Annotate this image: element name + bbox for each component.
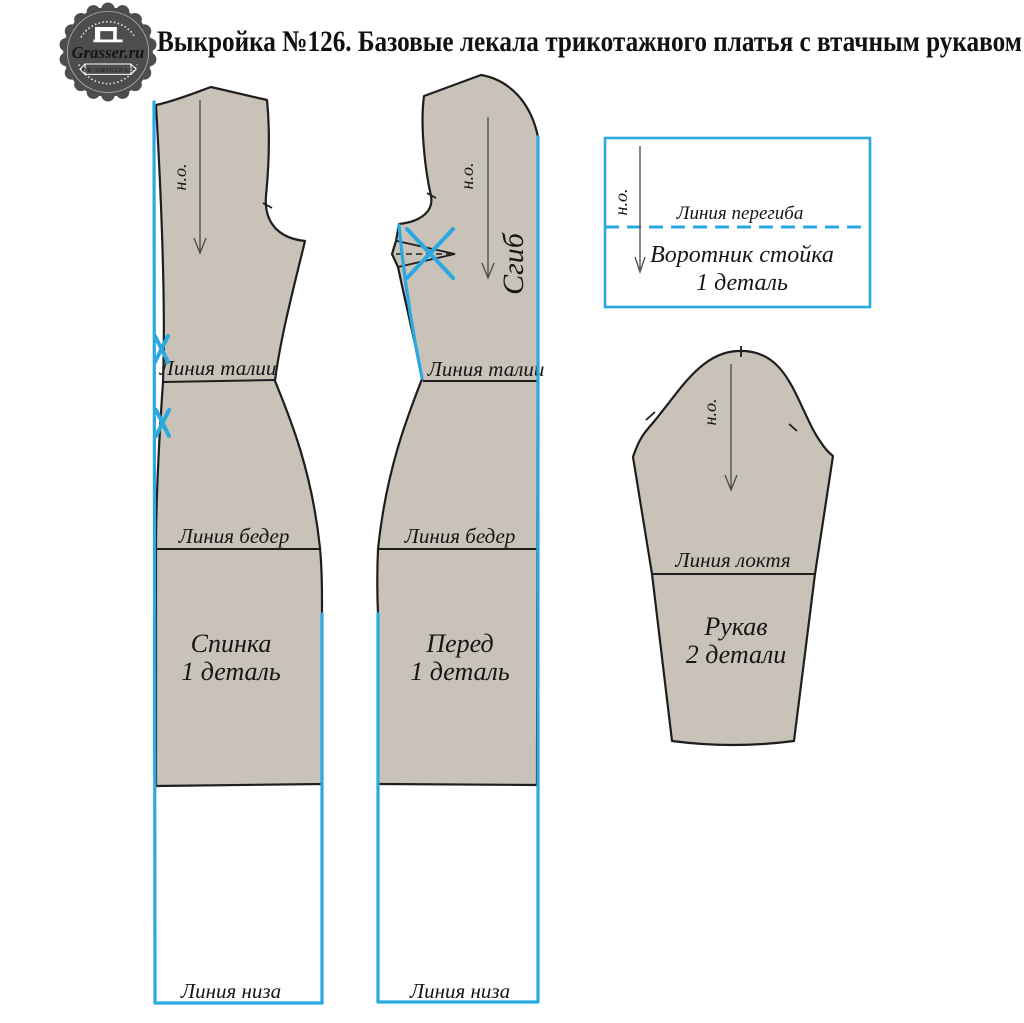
collar-piece-count: 1 деталь <box>696 270 788 296</box>
front-piece-name: Перед <box>425 629 493 658</box>
back-hem-label: Линия низа <box>180 979 281 1003</box>
sleeve-grain-label: н.о. <box>700 399 720 426</box>
front-hip-label: Линия бедер <box>404 524 516 548</box>
collar-grain-label: н.о. <box>611 189 631 216</box>
sleeve-piece: н.о. Линия локтя Рукав 2 детали <box>633 346 833 745</box>
back-piece-name: Спинка <box>191 629 272 658</box>
front-hem-label: Линия низа <box>409 979 510 1003</box>
front-grain-label: н.о. <box>457 163 477 190</box>
back-piece: н.о. Линия талии Линия бедер Спинка 1 де… <box>154 87 322 1003</box>
back-grain-label: н.о. <box>170 164 190 191</box>
back-hip-label: Линия бедер <box>178 524 290 548</box>
sleeve-elbow-label: Линия локтя <box>674 548 790 572</box>
collar-piece: н.о. Линия перегиба Воротник стойка 1 де… <box>605 138 870 307</box>
back-waist-label: Линия талии <box>159 356 277 380</box>
pattern-sheet: Grasser.ru BE ORIGINAL Выкройка №126. Ба… <box>0 0 1024 1023</box>
front-piece: н.о. Сгиб Линия талии Линия бедер Перед … <box>377 75 544 1003</box>
collar-fold-line-label: Линия перегиба <box>676 203 804 224</box>
sleeve-front-notch <box>646 412 655 420</box>
front-waist-label: Линия талии <box>427 357 545 381</box>
sleeve-piece-name: Рукав <box>703 612 767 641</box>
sleeve-piece-count: 2 детали <box>686 640 787 669</box>
collar-piece-name: Воротник стойка <box>650 242 834 268</box>
front-fold-label: Сгиб <box>497 232 530 295</box>
front-piece-count: 1 деталь <box>410 657 510 686</box>
back-piece-count: 1 деталь <box>181 657 281 686</box>
